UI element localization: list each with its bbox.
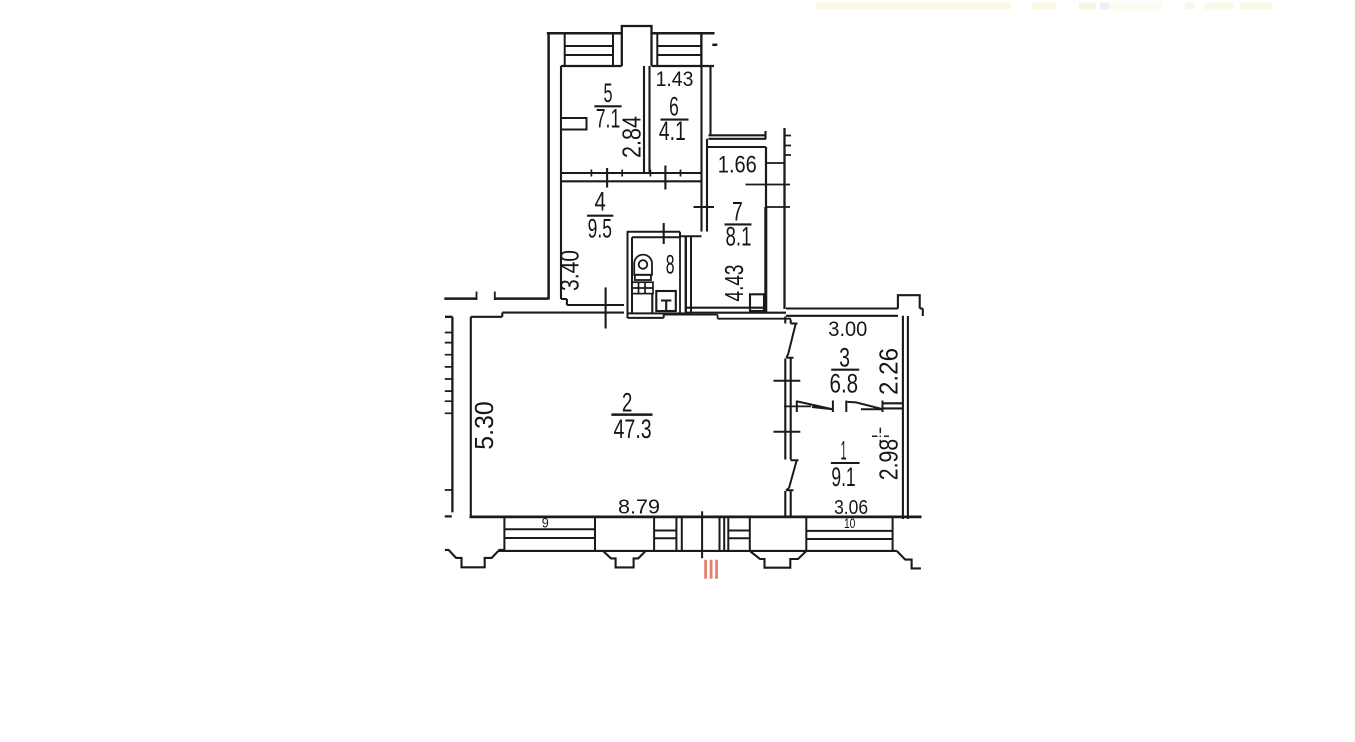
svg-text:9: 9 bbox=[542, 515, 549, 530]
svg-text:2.98: 2.98 bbox=[874, 439, 904, 481]
svg-text:8.1: 8.1 bbox=[726, 221, 752, 251]
svg-text:6.8: 6.8 bbox=[830, 369, 859, 399]
svg-text:8: 8 bbox=[666, 249, 675, 279]
svg-text:5.30: 5.30 bbox=[469, 401, 499, 450]
svg-text:1.43: 1.43 bbox=[656, 68, 694, 91]
svg-text:9.5: 9.5 bbox=[588, 214, 612, 244]
svg-text:2.84: 2.84 bbox=[617, 116, 647, 158]
svg-text:47.3: 47.3 bbox=[614, 414, 652, 444]
svg-text:4.43: 4.43 bbox=[719, 265, 749, 302]
svg-text:8.79: 8.79 bbox=[618, 496, 660, 518]
svg-text:4: 4 bbox=[595, 187, 606, 217]
svg-text:2.26: 2.26 bbox=[874, 348, 904, 395]
svg-text:1: 1 bbox=[840, 435, 846, 465]
svg-text:3.00: 3.00 bbox=[828, 318, 867, 341]
svg-text:1.66: 1.66 bbox=[718, 152, 757, 179]
svg-text:10: 10 bbox=[844, 516, 856, 531]
svg-text:4.1: 4.1 bbox=[659, 116, 686, 146]
svg-text:3.40: 3.40 bbox=[555, 250, 585, 291]
svg-text:2: 2 bbox=[622, 387, 633, 417]
svg-text:9.1: 9.1 bbox=[831, 462, 855, 492]
